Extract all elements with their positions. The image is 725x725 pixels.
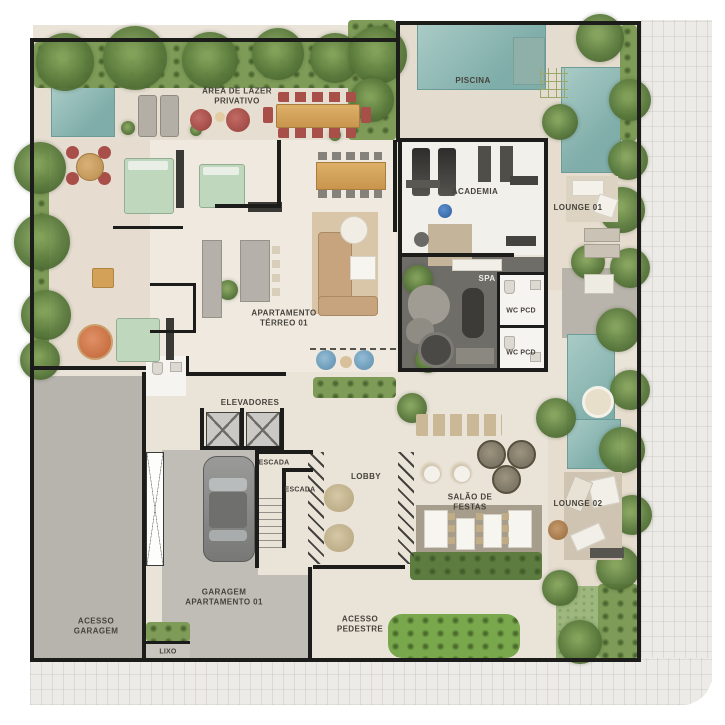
wall-left <box>30 38 34 662</box>
palm-tree <box>121 121 135 135</box>
elevator-car <box>246 412 280 448</box>
gym-machine <box>478 146 491 182</box>
bed <box>116 318 160 362</box>
room-label-acesso-garagem: ACESSO GARAGEM <box>74 617 119 638</box>
wall-wc-left <box>497 272 500 372</box>
sidewalk-paving-right <box>641 20 712 682</box>
blue-pouf <box>316 350 336 370</box>
wall-stair-mid-v <box>282 468 286 548</box>
hedge-bottom-right <box>598 584 638 658</box>
private-pool <box>52 88 114 136</box>
room-label-area-lazer: ÁREA DE LAZER PRIVATIVO <box>202 87 272 108</box>
wall-elevator-left <box>200 408 204 450</box>
sidewalk-paving-bottom <box>30 658 712 705</box>
wall-bath-b <box>150 330 196 333</box>
wall-top-left <box>30 38 400 42</box>
wall-stair-mid-h <box>282 468 313 472</box>
party-chairs <box>502 512 509 544</box>
hanging-chair <box>507 440 536 469</box>
party-table <box>424 510 448 548</box>
bed-pillows <box>128 161 168 170</box>
ottoman <box>340 216 368 244</box>
room-label-garagem-apto: GARAGEM APARTAMENTO 01 <box>185 588 263 609</box>
wall-apartment-south-glass <box>310 348 396 350</box>
room-label-spa: SPA <box>478 274 495 284</box>
palm-tree <box>609 79 651 121</box>
wall-bathroom-side <box>186 356 189 376</box>
terrace-round-table <box>76 153 104 181</box>
hedge-lobby-north <box>313 377 396 398</box>
wall-spa-bottom <box>398 368 548 372</box>
kitchen-counter <box>202 240 222 318</box>
palm-tree <box>21 290 71 340</box>
wall-stair-top <box>255 450 313 454</box>
lobby-planter <box>324 484 354 512</box>
barbell-row <box>406 180 440 188</box>
party-table <box>508 510 532 548</box>
palm-tree <box>536 398 576 438</box>
room-label-acesso-pedestre: ACESSO PEDESTRE <box>337 615 383 636</box>
room-label-wc-pcd-1: WC PCD <box>506 306 536 315</box>
cafe-table <box>453 465 471 483</box>
wall-corridor-top <box>186 372 286 376</box>
wall-bath-c <box>193 283 196 333</box>
wall-top-right <box>396 21 641 25</box>
wall-wc-top <box>497 272 547 275</box>
room-label-apartamento: APARTAMENTO TÉRREO 01 <box>251 309 316 330</box>
staircase <box>258 498 284 548</box>
wall-bedroom1 <box>113 226 183 229</box>
room-label-escada-1: ESCADA <box>259 458 290 467</box>
sofa <box>318 296 378 316</box>
wall-divider-private-piscina <box>396 21 400 140</box>
palm-tree <box>103 26 167 90</box>
pool-island <box>582 386 614 418</box>
treadmill <box>412 148 430 196</box>
dining-chairs-row <box>278 128 356 138</box>
sun-lounger <box>160 95 179 137</box>
palm-tree <box>608 140 648 180</box>
palm-tree <box>252 28 304 80</box>
massage-table <box>462 288 484 338</box>
wall-academia-top <box>396 138 548 142</box>
apt-dining-chairs <box>318 190 382 198</box>
wall-bottom <box>30 658 641 662</box>
room-label-elevadores: ELEVADORES <box>221 398 280 408</box>
palm-tree <box>14 142 66 194</box>
terrace-chair <box>66 146 79 159</box>
room-label-lounge-02: LOUNGE 02 <box>554 499 603 509</box>
palm-tree <box>542 104 578 140</box>
bar-stools <box>272 244 280 296</box>
sink <box>170 362 182 372</box>
room-label-wc-pcd-2: WC PCD <box>506 348 536 357</box>
lounge02-bench <box>590 548 624 558</box>
car-rear-window <box>209 530 247 541</box>
lounge01-lounger <box>584 228 620 242</box>
hedge-acesso-pedestre <box>388 614 520 658</box>
room-label-escada-2: ESCADA <box>285 485 316 494</box>
outdoor-dining-table <box>276 104 360 128</box>
red-pouf <box>226 108 250 132</box>
palm-tree <box>20 340 60 380</box>
side-table <box>215 112 225 122</box>
party-chairs <box>476 512 483 544</box>
lounge01-lounger <box>584 244 620 258</box>
palm-tree <box>542 570 578 606</box>
apt-dining-chairs <box>318 152 382 160</box>
palm-tree <box>610 370 650 410</box>
car-windshield <box>209 478 247 491</box>
gym-bench <box>506 236 536 246</box>
sun-lounger <box>138 95 157 137</box>
lounge01-daybed-white <box>584 274 614 294</box>
room-label-salao-festas: SALÃO DE FESTAS <box>448 493 493 514</box>
hedge-salao-south <box>410 552 542 580</box>
orange-pouf <box>77 324 113 360</box>
spa-shelf <box>452 259 502 271</box>
wall-spa-top <box>398 253 514 257</box>
wall-stair-left <box>255 450 259 568</box>
palm-tree <box>596 308 640 352</box>
wall-elevator-mid <box>240 408 244 450</box>
wall-right <box>637 21 641 662</box>
apt-dining-table <box>316 162 386 190</box>
toilet <box>152 362 163 375</box>
cafe-table <box>423 465 441 483</box>
ramp-gate <box>146 452 164 566</box>
dining-chair <box>263 107 273 123</box>
wall-elevator-right <box>280 408 284 450</box>
palm-tree <box>14 214 70 270</box>
wall-lixo-top <box>146 641 190 644</box>
wardrobe <box>176 150 184 208</box>
coffee-table <box>350 256 376 280</box>
room-label-lixo: LIXO <box>159 647 176 656</box>
kettlebell <box>414 232 429 247</box>
wall-bedroom2-side <box>277 140 281 206</box>
spa-tub <box>418 332 454 368</box>
party-table <box>456 518 475 550</box>
pouf-beige <box>340 356 352 368</box>
weight-rack <box>510 176 538 185</box>
party-chairs <box>448 512 455 544</box>
exercise-ball <box>438 204 452 218</box>
elevator-car <box>206 412 240 448</box>
floor-plan-canvas: ÁREA DE LAZER PRIVATIVO PISCINA ACADEMIA… <box>0 0 725 725</box>
party-table <box>483 514 502 548</box>
car-roof <box>209 492 247 528</box>
wall-terrace-bottom <box>33 366 146 370</box>
kitchen-island <box>240 240 270 302</box>
room-label-academia: ACADEMIA <box>452 187 498 197</box>
wall-acesso-garagem-right <box>142 372 146 662</box>
red-pouf <box>190 109 212 131</box>
pergola-grid <box>540 68 568 98</box>
salao-lounger-row <box>416 414 502 436</box>
wicker-chair <box>548 520 568 540</box>
room-label-piscina: PISCINA <box>455 76 490 86</box>
room-label-lounge-01: LOUNGE 01 <box>554 203 603 213</box>
spa-towel-bench <box>456 348 494 364</box>
louver-screen <box>398 452 414 564</box>
blue-pouf <box>354 350 374 370</box>
toilet <box>504 280 515 294</box>
hanging-chair <box>492 465 521 494</box>
lobby-planter <box>324 524 354 552</box>
wall-apartment-right <box>393 140 397 232</box>
wall-wc-mid <box>497 325 547 328</box>
wall-lobby-south <box>313 565 405 569</box>
sink <box>530 280 541 290</box>
wall-academia-right <box>544 138 548 372</box>
wall-bath-a <box>150 283 196 286</box>
room-label-lobby: LOBBY <box>351 472 381 482</box>
wardrobe <box>166 318 174 360</box>
wood-bench <box>92 268 114 288</box>
wall-kitchen-top <box>215 204 281 208</box>
wall-pedestre-left <box>308 567 312 658</box>
hedge-garage-patch <box>146 622 190 642</box>
dining-chairs-row <box>278 92 356 102</box>
dining-chair <box>361 107 371 123</box>
bed-pillows <box>203 167 239 175</box>
